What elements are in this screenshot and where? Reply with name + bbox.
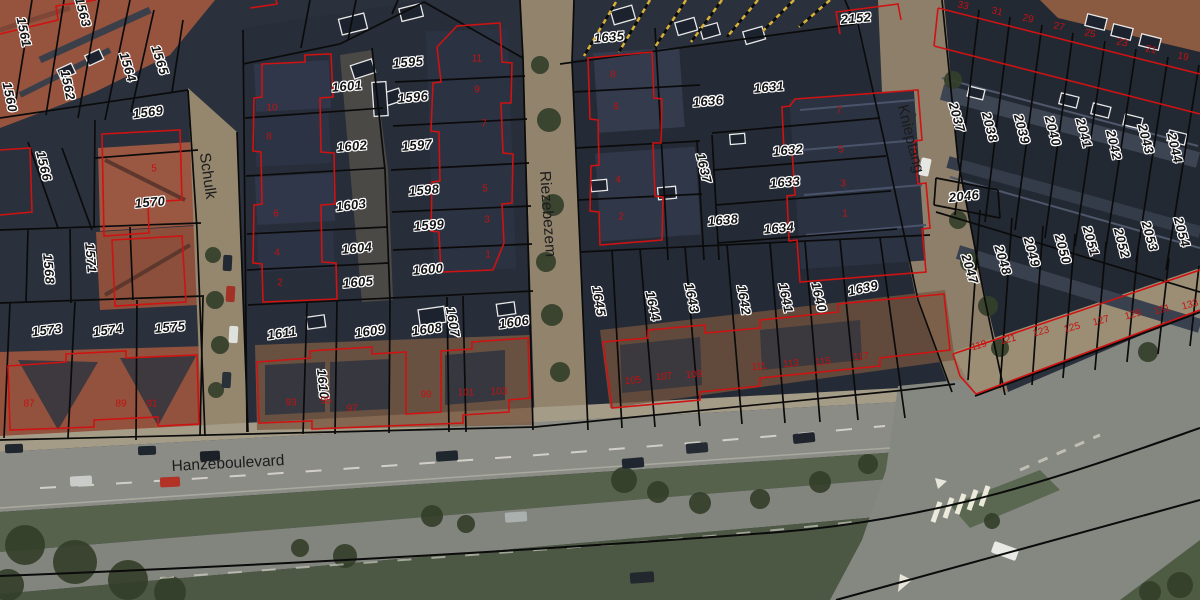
cadastral-aerial-map[interactable]: 1560156115621563156415651566156915701568… xyxy=(0,0,1200,600)
aerial-imagery xyxy=(0,0,1200,600)
